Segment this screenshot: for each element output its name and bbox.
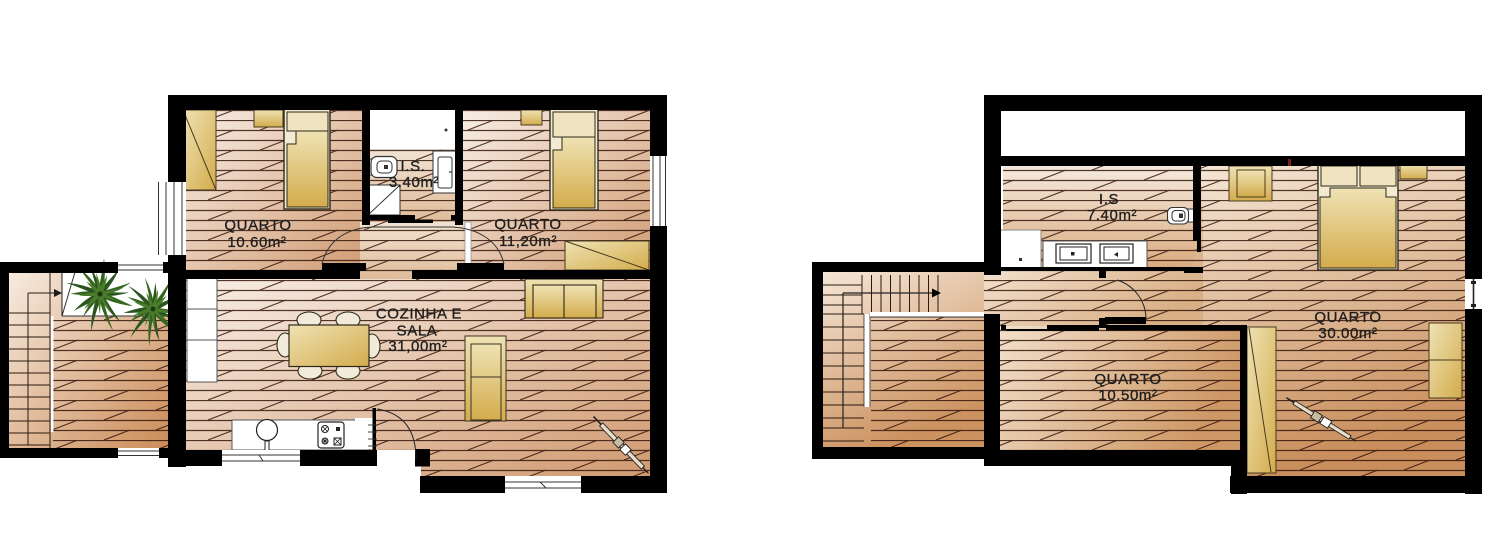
svg-text:30.00m²: 30.00m² [1318, 325, 1377, 342]
svg-text:COZINHA E: COZINHA E [376, 306, 462, 323]
svg-text:QUARTO: QUARTO [1094, 371, 1161, 388]
svg-text:QUARTO: QUARTO [494, 216, 561, 233]
svg-text:10.50m²: 10.50m² [1098, 387, 1157, 404]
svg-text:7.40m²: 7.40m² [1087, 207, 1137, 224]
svg-text:11,20m²: 11,20m² [499, 233, 557, 250]
svg-text:QUARTO: QUARTO [1314, 309, 1381, 326]
svg-text:31,00m²: 31,00m² [388, 338, 447, 355]
svg-text:QUARTO: QUARTO [224, 217, 291, 234]
svg-text:SALA: SALA [397, 323, 438, 340]
svg-text:10.60m²: 10.60m² [227, 234, 286, 251]
svg-text:3.40m²: 3.40m² [389, 174, 439, 191]
svg-text:I.S: I.S [1099, 191, 1119, 208]
svg-text:I.S.: I.S. [401, 158, 426, 175]
